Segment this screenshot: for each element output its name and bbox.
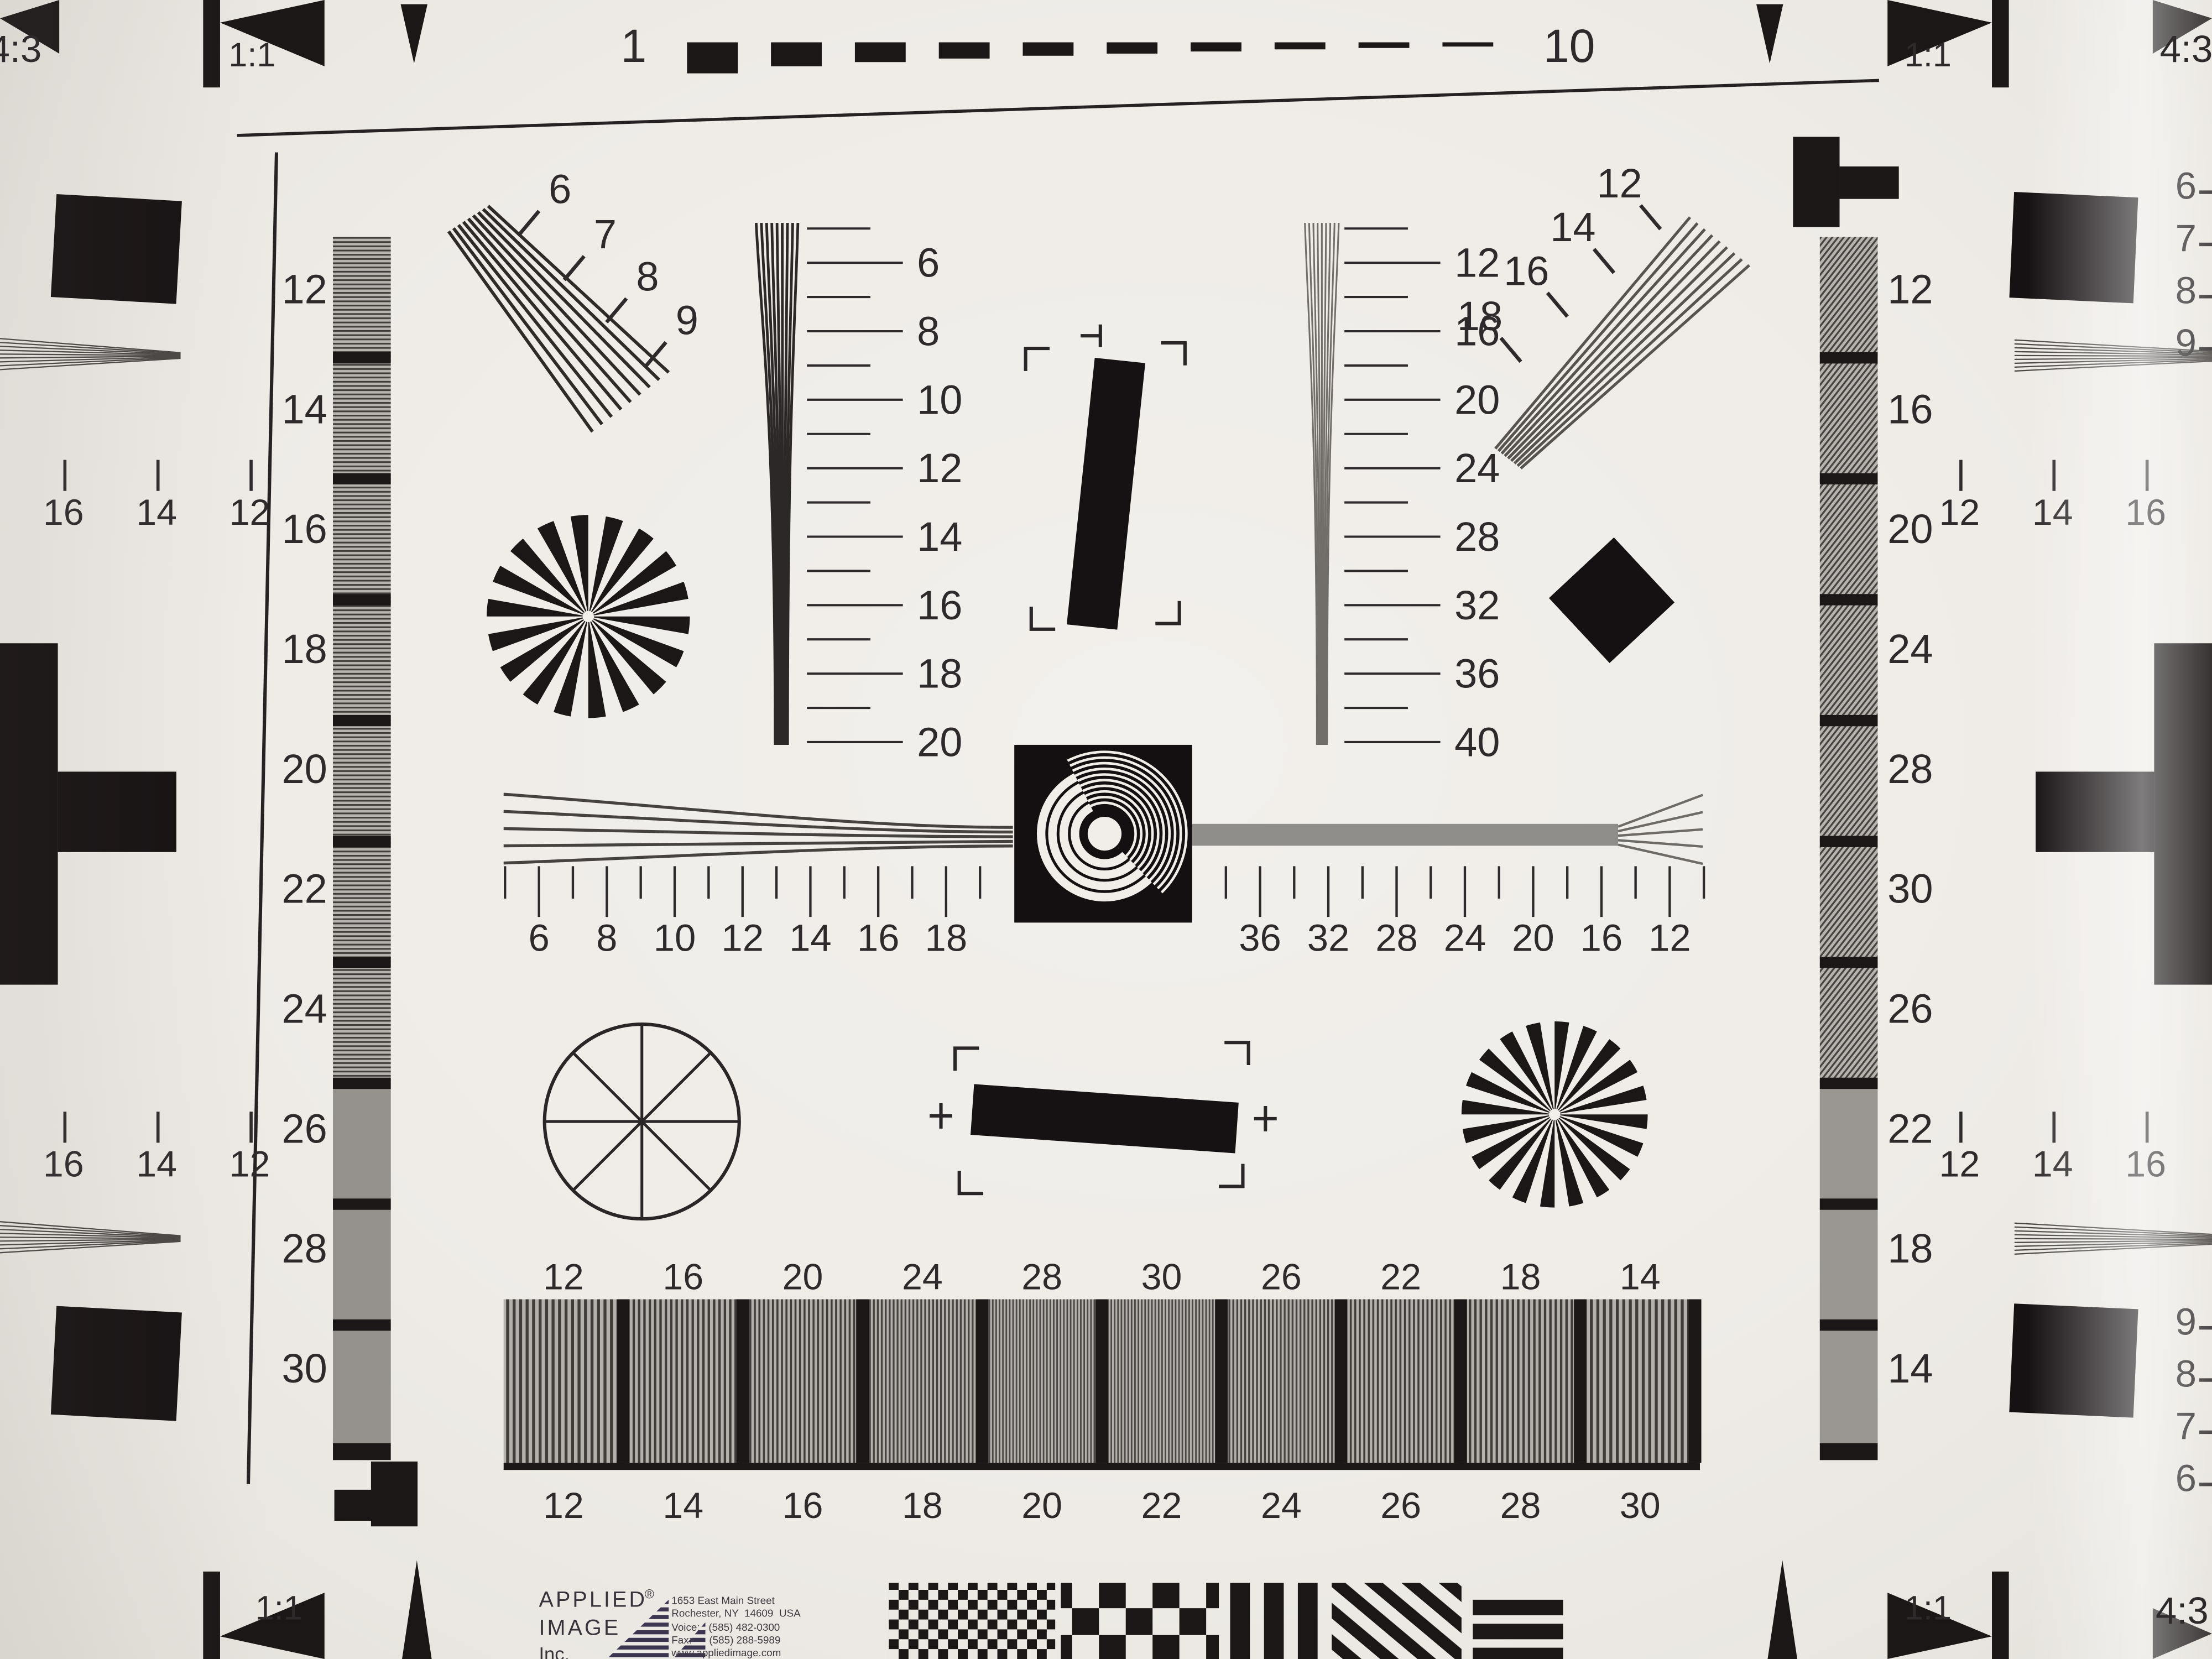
left-wedge-strip-separator [333, 1319, 391, 1331]
center-ruler-right-label: 24 [1444, 916, 1486, 959]
left-wedge-strip-segment-solid [333, 1204, 391, 1326]
center-ruler-left-label: 8 [596, 916, 617, 959]
bottom-strip-top-label: 24 [902, 1257, 943, 1298]
top-ruler-dash [1191, 43, 1241, 52]
top-right-small-triangle-icon [1756, 4, 1783, 64]
bottom-strip-segment-pattern [504, 1299, 623, 1463]
right-wedge-strip-separator [1820, 715, 1878, 726]
center-left-wedge-label: 18 [917, 651, 962, 697]
bottom-strip-segment-pattern [1102, 1299, 1221, 1463]
bottom-strip-separator [737, 1299, 749, 1463]
bottom-strip-bottom-label: 16 [782, 1485, 823, 1526]
diagonal-stripes-pattern [1332, 1583, 1462, 1659]
fan-tick-dash [1546, 291, 1569, 317]
left-wedge-strip-segment-solid [333, 1083, 391, 1204]
bottom-right-flag-bar [1992, 1572, 2009, 1659]
right-t-shape-stem [2154, 643, 2212, 984]
center-ruler-right-label: 36 [1239, 916, 1281, 959]
upper-left-fan-label: 8 [636, 254, 659, 300]
left-edge-scale-label: 12 [229, 1144, 270, 1185]
top-left-small-triangle-icon [400, 4, 427, 64]
left-wedge-strip-separator [333, 352, 391, 363]
left-edge-scale-label: 16 [43, 492, 84, 533]
left-strip-bottom-flag [371, 1462, 418, 1526]
right-wedge-strip-segment-solid [1820, 1204, 1878, 1326]
center-left-wedge-line [787, 223, 798, 745]
right-column-number: 18 [1887, 1225, 1933, 1271]
bottom-strip-top-label: 28 [1021, 1257, 1062, 1298]
left-wedge-strip-segment-pattern [333, 721, 391, 842]
right-wedge-strip-segment-pattern [1820, 358, 1878, 479]
center-right-wedge-label: 40 [1454, 719, 1500, 765]
right-column-number: 14 [1887, 1345, 1933, 1391]
upper-left-siemens-star-center-dot [583, 611, 594, 622]
bottom-strip-separator [1215, 1299, 1228, 1463]
bottom-strip-top-label: 22 [1380, 1257, 1421, 1298]
logo-address-line: www.appliedimage.com [671, 1647, 800, 1659]
tick-mark [2015, 1239, 2212, 1239]
logo-address-line: Voice: (585) 482-0300 [671, 1620, 800, 1634]
center-ruler-right-label: 20 [1512, 916, 1554, 959]
corner-square-label-top-left: 1:1 [228, 36, 275, 76]
center-ruler-left-label: 16 [857, 916, 900, 959]
right-wedge-strip-end-bar [1820, 1443, 1878, 1460]
left-edge-scale-label: 14 [136, 492, 177, 533]
right-wedge-strip-segment-pattern [1820, 962, 1878, 1083]
fan-tick-dash [1593, 248, 1615, 274]
upper-left-fan-label: 7 [594, 211, 617, 257]
bottom-strip-segment-pattern [623, 1299, 743, 1463]
right-edge-number: 7 [2176, 1405, 2197, 1447]
left-wedge-strip-separator [333, 715, 391, 726]
horizontal-wedge-gray-bar [1192, 824, 1618, 846]
left-wedge-strip-separator [333, 1078, 391, 1089]
left-column-number: 28 [282, 1225, 327, 1271]
right-wedge-strip-segment-pattern [1820, 237, 1878, 358]
right-edge-number: 9 [2176, 321, 2197, 364]
center-ruler-left-label: 14 [789, 916, 832, 959]
vertical-bars-pattern [1230, 1583, 1317, 1659]
left-wedge-strip-segment-solid [333, 1325, 391, 1446]
bottom-strip-separator [1454, 1299, 1467, 1463]
tick-mark [483, 209, 659, 380]
fan-tick-dash [605, 298, 628, 324]
bottom-strip-bottom-label: 28 [1500, 1485, 1541, 1526]
right-column-number: 12 [1887, 266, 1933, 312]
left-wedge-strip-separator [333, 957, 391, 968]
right-wedge-strip-separator [1820, 1198, 1878, 1209]
right-wedge-strip-separator [1820, 1078, 1878, 1089]
right-column-number: 20 [1887, 506, 1933, 552]
upper-right-fan-label: 18 [1457, 293, 1503, 339]
bottom-left-small-triangle-icon [402, 1560, 432, 1659]
right-edge-scale-label: 14 [2032, 492, 2073, 533]
tilted-bar-horizontal [971, 1084, 1239, 1153]
logo-name-line1: APPLIED [539, 1588, 647, 1614]
left-column-number: 12 [282, 266, 327, 312]
left-wedge-strip-segment-pattern [333, 599, 391, 721]
right-edge-number: 8 [2176, 1353, 2197, 1395]
center-right-wedge-label: 12 [1454, 240, 1500, 286]
left-column-number: 18 [282, 626, 327, 672]
center-right-wedge-label: 32 [1454, 582, 1500, 628]
right-wedge-strip-segment-solid [1820, 1325, 1878, 1446]
left-wedge-strip-segment-pattern [333, 962, 391, 1083]
right-wedge-strip-separator [1820, 594, 1878, 605]
horizontal-bars-pattern [1473, 1600, 1563, 1659]
right-column-number: 28 [1887, 746, 1933, 792]
bottom-strip-bottom-label: 30 [1620, 1485, 1661, 1526]
center-left-wedge-label: 12 [917, 445, 962, 491]
bottom-left-flag-bar [203, 1572, 220, 1659]
top-ruler-dash [1442, 43, 1493, 47]
left-wedge-strip-separator [333, 473, 391, 484]
center-left-wedge-label: 6 [917, 240, 940, 286]
top-left-flag-bar [203, 0, 220, 87]
upper-right-fan-label: 12 [1597, 160, 1642, 206]
center-ruler-right-label: 28 [1375, 916, 1418, 959]
top-ruler-dash [1359, 43, 1410, 48]
left-wedge-strip-segment-pattern [333, 237, 391, 358]
bottom-strip-separator [976, 1299, 989, 1463]
tilted-bar-vertical [1067, 358, 1145, 630]
center-left-wedge-label: 20 [917, 719, 962, 765]
top-ruler-dash [1022, 43, 1073, 56]
center-ruler-left-label: 12 [721, 916, 764, 959]
bottom-strip-segment-pattern [1580, 1299, 1700, 1463]
bottom-strip-separator [1095, 1299, 1108, 1463]
upper-right-fan-label: 16 [1504, 248, 1549, 294]
top-ruler-dash [771, 43, 822, 66]
right-column-number: 24 [1887, 626, 1933, 672]
center-right-wedge-label: 24 [1454, 445, 1500, 491]
corner-ratio-label-top-right: 4:3 [2160, 28, 2212, 72]
top-ruler-dash [939, 43, 990, 59]
bottom-strip-bottom-label: 26 [1380, 1485, 1421, 1526]
left-column-number: 16 [282, 506, 327, 552]
right-edge-number: 6 [2176, 165, 2197, 207]
chart-artwork: 1214161820222426283012162024283026221814… [0, 0, 2212, 1659]
corner-ratio-label-top-left: 4:3 [0, 28, 41, 72]
logo-registered-mark: ® [645, 1587, 654, 1601]
logo-address-block: 1653 East Main StreetRochester, NY 14609… [671, 1594, 800, 1659]
top-frame-line [237, 80, 1879, 135]
bottom-strip-segment-pattern [1222, 1299, 1341, 1463]
corner-square-label-top-right: 1:1 [1905, 36, 1952, 76]
right-edge-scale-label: 16 [2125, 1144, 2166, 1185]
bottom-strip-bottom-label: 12 [543, 1485, 584, 1526]
left-t-shape-arm [58, 771, 176, 852]
bottom-strip-segment-pattern [743, 1299, 862, 1463]
bottom-strip-separator [1689, 1299, 1702, 1463]
resolution-test-chart-photo: 1214161820222426283012162024283026221814… [0, 0, 2212, 1659]
fan-tick-dash [563, 255, 586, 281]
fan-tick-dash [1639, 204, 1662, 230]
tick-mark [1618, 830, 1703, 836]
left-frame-line [248, 153, 276, 1484]
left-edge-scale-label: 16 [43, 1144, 84, 1185]
right-wedge-strip-segment-pattern [1820, 599, 1878, 721]
horizontal-wedge-line-left [504, 841, 1013, 846]
right-edge-number-dash [2199, 347, 2212, 351]
logo-name-line3: Inc. [539, 1644, 570, 1659]
left-column-number: 14 [282, 386, 327, 432]
bottom-strip-top-label: 16 [662, 1257, 703, 1298]
top-ruler-dash [687, 43, 738, 74]
right-edge-scale-label: 14 [2032, 1144, 2073, 1185]
logo-address-line: Fax: (585) 288-5989 [671, 1634, 800, 1647]
right-edge-number: 9 [2176, 1300, 2197, 1343]
tick-mark [1618, 840, 1703, 846]
horizontal-wedge-line-left [504, 794, 1013, 827]
center-left-wedge-label: 14 [917, 514, 962, 560]
right-edge-scale-label: 12 [1939, 492, 1980, 533]
center-left-wedge-line [782, 223, 783, 745]
left-wedge-strip-separator [333, 594, 391, 605]
upper-left-fan-label: 9 [676, 298, 698, 343]
right-wedge-strip-separator [1820, 473, 1878, 484]
left-top-black-square [51, 194, 182, 304]
right-column-number: 16 [1887, 386, 1933, 432]
bottom-strip-bottom-label: 20 [1021, 1485, 1062, 1526]
bottom-strip-top-label: 26 [1261, 1257, 1302, 1298]
fine-checkerboard-pattern [889, 1583, 1055, 1659]
bottom-strip-segment-pattern [1341, 1299, 1460, 1463]
center-ruler-left-label: 6 [528, 916, 549, 959]
coarse-checkerboard-pattern [1061, 1583, 1219, 1659]
right-top-black-square [2009, 192, 2138, 303]
bottom-strip-top-label: 12 [543, 1257, 584, 1298]
tick-mark [458, 225, 612, 417]
left-wedge-strip-segment-pattern [333, 358, 391, 479]
corner-square-label-bottom-right: 1:1 [1905, 1590, 1952, 1629]
top-ruler-end-label: 10 [1543, 20, 1595, 74]
left-column-number: 20 [282, 746, 327, 792]
left-edge-scale-label: 14 [136, 1144, 177, 1185]
center-left-wedge-label: 10 [917, 377, 962, 422]
left-wedge-strip-segment-pattern [333, 479, 391, 600]
bottom-strip-top-label: 18 [1500, 1257, 1541, 1298]
center-ruler-right-label: 32 [1307, 916, 1350, 959]
center-ruler-left-label: 18 [925, 916, 968, 959]
center-ruler-left-label: 10 [654, 916, 696, 959]
right-edge-number-dash [2199, 295, 2212, 298]
bottom-strip-segment-pattern [982, 1299, 1102, 1463]
top-ruler-dash [855, 43, 906, 62]
tick-mark [1618, 845, 1703, 864]
right-strip-top-flag-nub [1840, 166, 1899, 199]
bottom-strip-top-label: 14 [1620, 1257, 1661, 1298]
bottom-strip-separator [1574, 1299, 1587, 1463]
corner-ratio-label-bottom-right: 4:3 [2156, 1590, 2209, 1634]
right-column-number: 26 [1887, 985, 1933, 1031]
fan-tick-dash [518, 210, 540, 236]
right-strip-top-flag [1793, 137, 1839, 227]
upper-left-fan-label: 6 [549, 166, 571, 212]
center-right-wedge-label: 20 [1454, 377, 1500, 422]
right-edge-number-dash [2199, 190, 2212, 194]
fan-tick-dash [1500, 337, 1522, 363]
right-edge-number-dash [2199, 1483, 2212, 1486]
right-wedge-strip-separator [1820, 352, 1878, 363]
right-t-shape-arm [2036, 771, 2154, 852]
left-t-shape-stem [0, 643, 58, 984]
left-column-number: 30 [282, 1345, 327, 1391]
center-ring-target [1014, 745, 1192, 922]
top-right-flag-bar [1992, 0, 2009, 87]
left-wedge-strip-separator [333, 836, 391, 847]
center-right-wedge-label: 36 [1454, 651, 1500, 697]
left-edge-scale-label: 12 [229, 492, 270, 533]
bottom-strip-bottom-label: 14 [662, 1485, 703, 1526]
left-column-number: 24 [282, 985, 327, 1031]
bottom-strip-separator [1335, 1299, 1348, 1463]
bottom-strip-baseline [504, 1463, 1700, 1470]
right-wedge-strip-segment-pattern [1820, 842, 1878, 963]
right-edge-number: 7 [2176, 217, 2197, 259]
right-edge-number-dash [2199, 1326, 2212, 1329]
bottom-strip-segment-pattern [1460, 1299, 1580, 1463]
right-edge-number-dash [2199, 243, 2212, 246]
center-left-wedge-label: 8 [917, 309, 940, 354]
center-ruler-right-label: 16 [1580, 916, 1623, 959]
bottom-strip-top-label: 30 [1141, 1257, 1182, 1298]
bottom-right-small-triangle-icon [1767, 1560, 1797, 1659]
top-ruler-dash [1107, 43, 1157, 54]
right-edge-number: 8 [2176, 269, 2197, 311]
left-bottom-black-square [51, 1306, 182, 1421]
right-edge-scale-label: 12 [1939, 1144, 1980, 1185]
right-edge-scale-label: 16 [2125, 492, 2166, 533]
center-left-wedge-label: 16 [917, 582, 962, 628]
upper-right-fan-label: 14 [1550, 204, 1595, 250]
black-diamond [1549, 538, 1674, 663]
right-edge-number-dash [2199, 1378, 2212, 1381]
left-column-number: 26 [282, 1105, 327, 1151]
right-wedge-strip-segment-pattern [1820, 721, 1878, 842]
lower-right-siemens-star-center-dot [1549, 1109, 1560, 1120]
center-ruler-right-label: 12 [1648, 916, 1691, 959]
right-edge-number-dash [2199, 1431, 2212, 1434]
top-ruler-start-label: 1 [620, 20, 646, 74]
bottom-test-patterns [889, 1583, 1563, 1659]
corner-square-label-bottom-left: 1:1 [255, 1590, 302, 1629]
right-column-number: 30 [1887, 866, 1933, 912]
left-wedge-strip-end-bar [333, 1443, 391, 1460]
horizontal-wedge-line-left [504, 846, 1013, 863]
segmented-wheel [545, 1024, 739, 1219]
bottom-strip-top-label: 20 [782, 1257, 823, 1298]
bottom-strip-bottom-label: 18 [902, 1485, 943, 1526]
center-right-wedge-label: 28 [1454, 514, 1500, 560]
right-edge-number: 6 [2176, 1457, 2197, 1499]
bottom-strip-segment-pattern [863, 1299, 982, 1463]
right-wedge-strip-segment-solid [1820, 1083, 1878, 1204]
logo-address-line: 1653 East Main Street [671, 1594, 800, 1608]
left-wedge-strip-separator [333, 1198, 391, 1209]
tick-mark [448, 231, 592, 431]
logo-address-line: Rochester, NY 14609 USA [671, 1607, 800, 1620]
left-column-number: 22 [282, 866, 327, 912]
center-target-dot [1088, 817, 1121, 851]
bottom-strip-bottom-label: 24 [1261, 1485, 1302, 1526]
left-wedge-strip-segment-pattern [333, 842, 391, 963]
left-strip-bottom-flag-nub [335, 1490, 374, 1521]
tick-mark [453, 228, 602, 425]
right-wedge-strip-segment-pattern [1820, 479, 1878, 600]
right-bottom-black-square [2009, 1303, 2138, 1417]
right-wedge-strip-separator [1820, 957, 1878, 968]
bottom-strip-separator [617, 1299, 630, 1463]
bottom-strip-separator [856, 1299, 869, 1463]
right-column-number: 22 [1887, 1105, 1933, 1151]
logo-name-line2: IMAGE [539, 1616, 620, 1642]
top-ruler-dash [1275, 43, 1326, 50]
bottom-strip-bottom-label: 22 [1141, 1485, 1182, 1526]
right-wedge-strip-separator [1820, 836, 1878, 847]
right-wedge-strip-separator [1820, 1319, 1878, 1331]
